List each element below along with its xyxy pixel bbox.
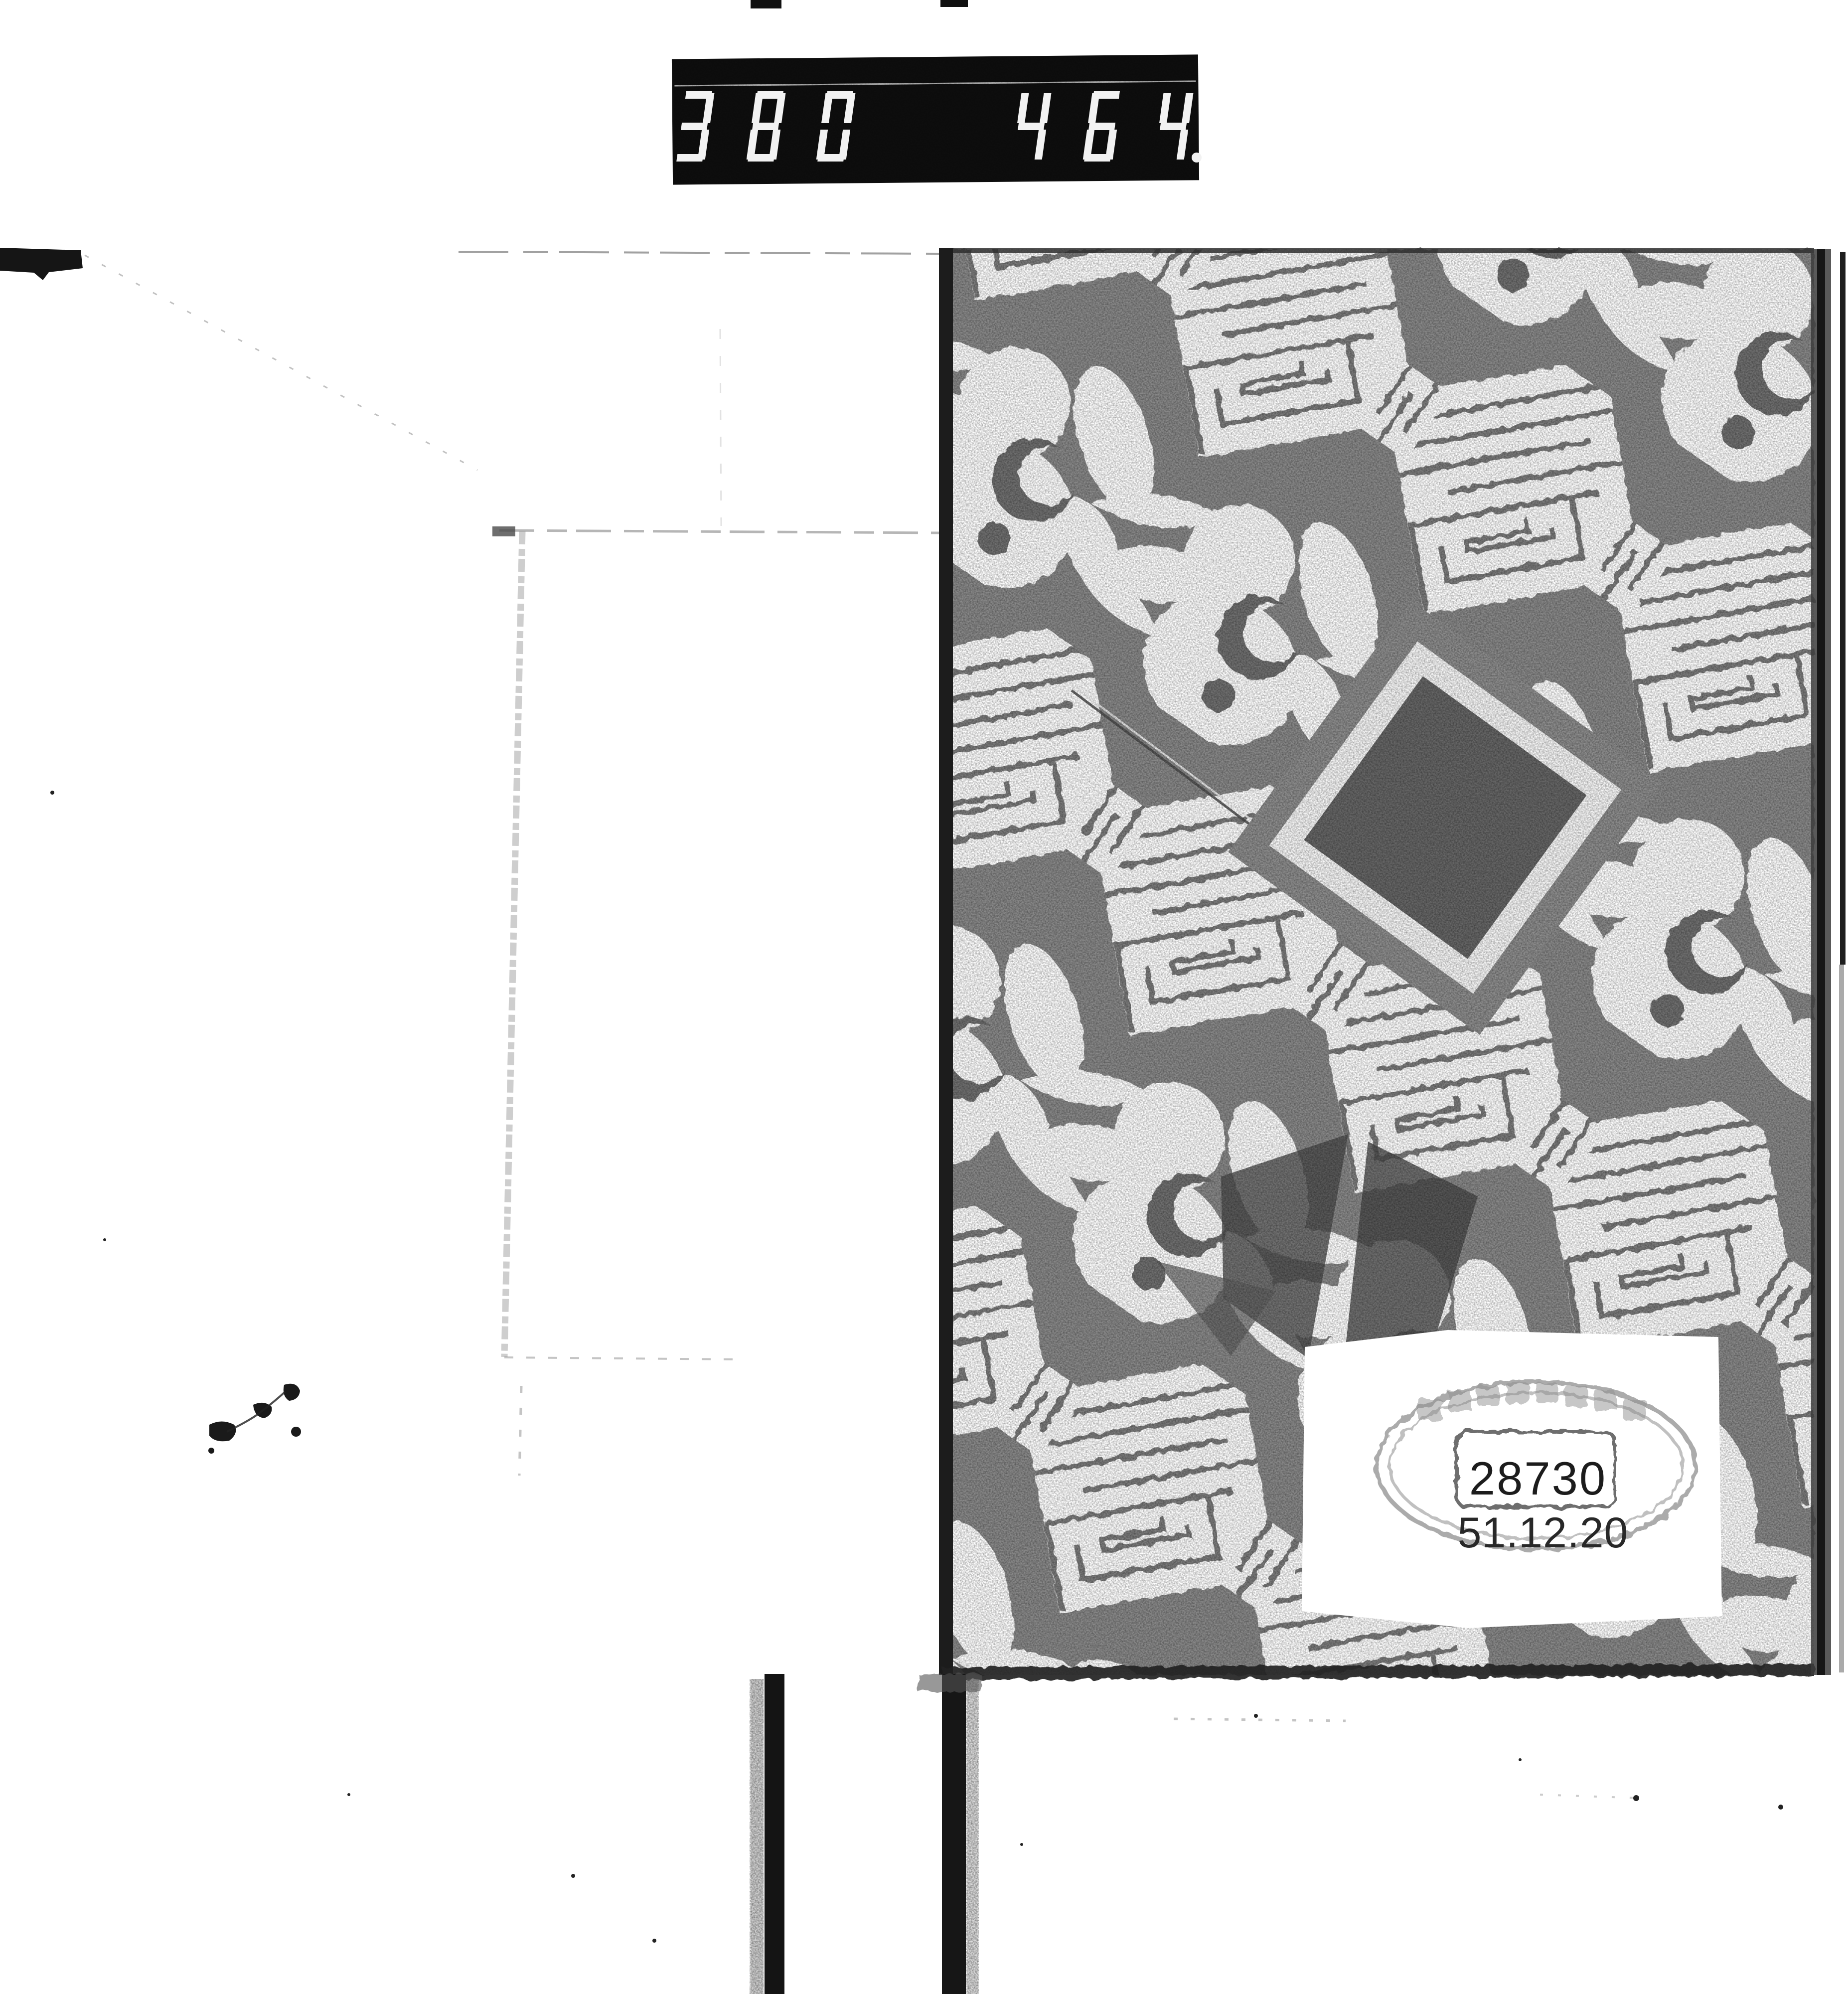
svg-text:28730: 28730 xyxy=(1469,1452,1607,1504)
svg-text:51.12.20: 51.12.20 xyxy=(1458,1509,1629,1557)
